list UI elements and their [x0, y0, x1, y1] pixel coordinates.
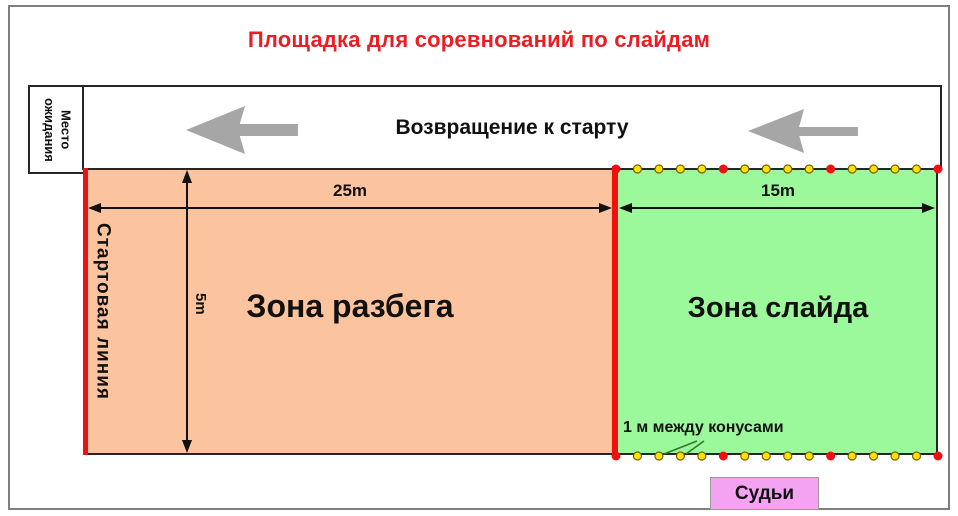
judges-box: Судьи [710, 477, 819, 510]
diagram-title: Площадка для соревнований по слайдам [0, 27, 958, 53]
waiting-area-label: Место ожидания [41, 98, 74, 162]
slide-competition-field-diagram: Площадка для соревнований по слайдам Мес… [0, 0, 958, 516]
waiting-area-label-line1: Место [57, 98, 73, 162]
cone-spacing-note: 1 м между конусами [623, 419, 784, 437]
runup-height-dimension-label: 5m [192, 293, 209, 315]
waiting-area-label-line2: ожидания [41, 98, 57, 162]
slide-width-dimension-label: 15m [728, 181, 828, 201]
return-lane-label: Возвращение к старту [84, 87, 940, 168]
runup-zone-label: Зона разбега [88, 288, 612, 325]
judges-label: Судьи [735, 483, 794, 505]
waiting-area-box: Место ожидания [28, 85, 86, 174]
zone-divider-line [612, 166, 618, 457]
runup-width-dimension-label: 25m [300, 181, 400, 201]
return-lane: Возвращение к старту [82, 85, 942, 170]
slide-zone-label: Зона слайда [618, 292, 938, 325]
